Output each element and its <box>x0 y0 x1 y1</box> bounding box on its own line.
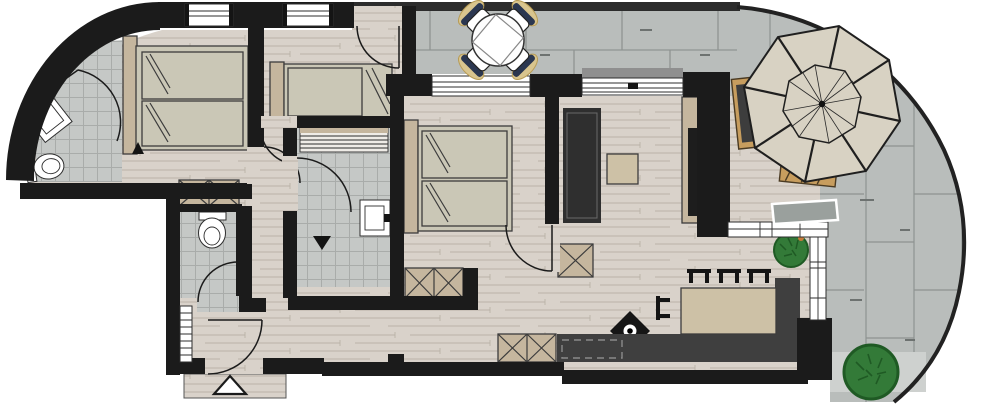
floor-plan-canvas: apartment-floor-plan <box>0 0 1000 406</box>
kitchen-corner-wall <box>797 318 832 380</box>
shower-left-wall-top <box>283 127 297 157</box>
corridor-top-wall <box>288 296 478 310</box>
wc-top-wall <box>176 204 242 212</box>
bedroom-1 <box>123 36 248 154</box>
double-bed-2-mattress-top <box>422 131 507 178</box>
kitchen-counter-bottom <box>557 334 800 362</box>
bottom-wall-2 <box>322 362 564 376</box>
potted-plant <box>774 233 808 267</box>
dining-table <box>681 288 776 334</box>
wc-toilet <box>199 212 227 248</box>
wardrobe-closet-3 <box>558 244 593 277</box>
garden-bush <box>844 345 898 399</box>
wc-room <box>199 212 227 248</box>
bedroom-2 <box>404 120 512 233</box>
outdoor-bench <box>772 200 838 224</box>
tv <box>688 128 698 216</box>
bathroom-bottom-wall <box>20 183 252 199</box>
middle-bedroom <box>270 62 392 122</box>
coffee-table <box>607 154 638 184</box>
bed2-headboard-wall <box>404 120 418 233</box>
bedroom1-window-1 <box>185 4 233 26</box>
living-window-sill <box>582 68 683 78</box>
terrace-side-wall <box>402 6 416 76</box>
shower-washbasin <box>360 200 390 236</box>
shower-bench-top <box>300 128 388 133</box>
living-window <box>582 68 683 95</box>
double-bed-2-mattress-bottom <box>422 181 507 226</box>
bed1-headboard-wall <box>123 36 137 154</box>
single-bed-headboard <box>270 62 284 122</box>
middlebed-shower-wall <box>297 116 402 128</box>
wardrobe-closet-4 <box>498 334 556 362</box>
middlebed-door-gap <box>261 116 297 128</box>
living-right-wall <box>697 74 730 237</box>
wc-right-wall <box>236 206 252 310</box>
wc-door-gap <box>197 296 239 312</box>
radiator <box>180 306 192 362</box>
shower-right-wall <box>390 96 404 296</box>
bed2-top-wall-left <box>386 74 432 96</box>
bedroom2-right-wall <box>545 85 559 225</box>
sofa <box>563 108 601 223</box>
single-bed-mattress <box>288 68 362 116</box>
shower-door-gap <box>282 156 298 211</box>
kitchen-counter-right <box>775 278 800 336</box>
entry-door-gap <box>205 356 263 374</box>
bedroom1-door-gap <box>247 147 265 184</box>
bottom-wall-nub <box>388 354 404 364</box>
wardrobe-closet-2 <box>405 268 463 298</box>
wardrobe-stub-wall <box>463 268 478 298</box>
bottom-wall-3 <box>562 370 808 384</box>
bedroom1-window-2 <box>283 4 333 26</box>
floor-plan-svg: apartment-floor-plan <box>0 0 1000 406</box>
terrace-door-threshold <box>352 6 402 30</box>
bottom-wall-1 <box>262 358 324 374</box>
shower-left-wall-bottom <box>283 210 297 298</box>
